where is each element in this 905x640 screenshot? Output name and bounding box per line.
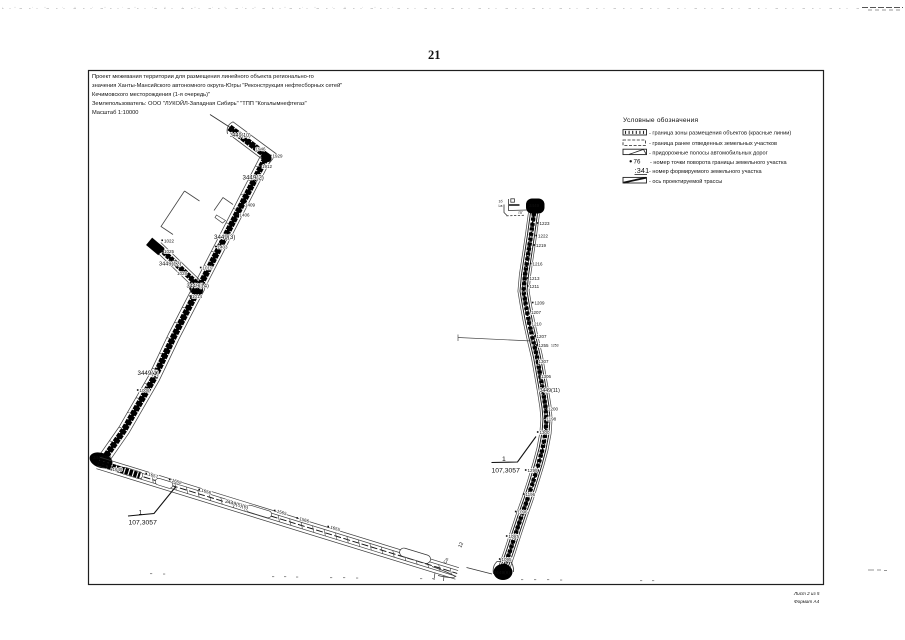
svg-text:3449(3): 3449(3) (214, 234, 235, 241)
svg-text:Формат А4: Формат А4 (794, 599, 820, 604)
svg-text:1200: 1200 (548, 407, 559, 412)
svg-text:1198: 1198 (547, 417, 557, 422)
svg-text:1028: 1028 (177, 271, 188, 276)
svg-text:3449(14): 3449(14) (187, 283, 210, 289)
svg-text:1014: 1014 (192, 294, 203, 299)
svg-text:- номер точки поворота границы: - номер точки поворота границы земельног… (650, 160, 788, 166)
svg-text:1222: 1222 (538, 234, 549, 239)
svg-text:Кечимовского месторождения (1-: Кечимовского месторождения (1-я очередь)… (92, 92, 210, 98)
svg-text:1: 1 (502, 456, 506, 463)
svg-text:1223: 1223 (540, 221, 551, 226)
svg-text:1219: 1219 (536, 243, 547, 248)
svg-text:107,3057: 107,3057 (492, 468, 521, 475)
svg-text:1307: 1307 (539, 359, 550, 364)
svg-text:107,3057: 107,3057 (129, 520, 158, 527)
svg-text:76: 76 (634, 159, 641, 166)
svg-text:3449(12): 3449(12) (159, 261, 182, 267)
svg-text:3449(1): 3449(1) (138, 370, 159, 377)
svg-text:1022: 1022 (164, 238, 175, 243)
svg-text:1196: 1196 (526, 492, 536, 497)
svg-text:1097: 1097 (509, 534, 520, 539)
svg-text:21: 21 (428, 48, 441, 62)
svg-text:1209: 1209 (535, 301, 546, 306)
svg-text:1025: 1025 (164, 249, 175, 254)
svg-text:1б: 1б (499, 200, 503, 204)
svg-text:3449(10): 3449(10) (230, 133, 251, 139)
svg-text:1929: 1929 (273, 154, 284, 159)
svg-text::341: :341 (635, 166, 650, 175)
svg-text:1096: 1096 (518, 510, 529, 515)
svg-text:- ось проектируемой трассы: - ось проектируемой трассы (649, 178, 722, 185)
svg-text:3449(11): 3449(11) (540, 388, 561, 394)
svg-text:Проект межевания территории дл: Проект межевания территории для размещен… (92, 73, 314, 80)
svg-text:- граница ранее отведенных зем: - граница ранее отведенных земельных уча… (649, 141, 777, 147)
svg-text:Масштаб 1:10000: Масштаб 1:10000 (92, 110, 138, 116)
svg-text:- придорожные полосы автомобил: - придорожные полосы автомобильных дорог (649, 151, 768, 157)
svg-text:1255: 1255 (539, 343, 550, 348)
svg-text:3449(8): 3449(8) (494, 570, 511, 576)
svg-text:- граница зоны размещения объе: - граница зоны размещения объектов (крас… (649, 131, 791, 137)
svg-text:значения Ханты-Мансийского авт: значения Ханты-Мансийского автономного о… (92, 82, 342, 89)
svg-text:1211: 1211 (530, 284, 540, 289)
svg-text:3449: 3449 (529, 203, 540, 208)
svg-text:1306: 1306 (541, 374, 552, 379)
svg-text:3449(2): 3449(2) (243, 175, 264, 182)
svg-text:1912: 1912 (262, 164, 273, 169)
svg-text:Lв: Lв (499, 204, 503, 208)
svg-text:1213: 1213 (530, 276, 541, 281)
svg-text:1207: 1207 (531, 310, 542, 315)
svg-text:ПГ: ПГ (519, 211, 524, 215)
svg-text:1649: 1649 (113, 467, 124, 472)
svg-text:- номер формируемого земельног: - номер формируемого земельного участка (649, 169, 763, 175)
svg-text:1095: 1095 (502, 557, 513, 562)
svg-text:1253: 1253 (551, 344, 559, 348)
svg-text:1019: 1019 (203, 266, 214, 271)
svg-text:1299: 1299 (528, 468, 539, 473)
svg-text:1006: 1006 (140, 388, 151, 393)
svg-text:1946: 1946 (256, 147, 267, 152)
svg-text:Землепользователь: ООО "ЛУКОЙЛ: Землепользователь: ООО "ЛУКОЙЛ-Западная … (92, 99, 307, 107)
svg-text:1207: 1207 (537, 334, 548, 339)
svg-text:1409: 1409 (245, 203, 256, 208)
svg-text:1216: 1216 (533, 262, 544, 267)
svg-text:Лист 2 из 5: Лист 2 из 5 (793, 591, 820, 596)
svg-text:1300: 1300 (540, 430, 551, 435)
svg-text:1403: 1403 (218, 245, 229, 250)
svg-text:1406: 1406 (240, 213, 251, 218)
svg-text:1: 1 (139, 510, 143, 517)
svg-text:Условные обозначения: Условные обозначения (623, 116, 698, 124)
svg-text:1210: 1210 (532, 322, 543, 327)
